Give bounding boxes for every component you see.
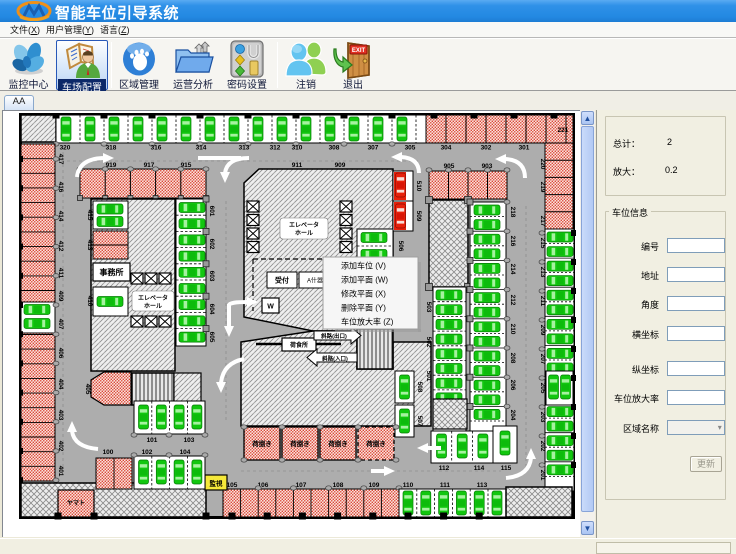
svg-text:603: 603 <box>208 271 215 282</box>
svg-text:510: 510 <box>415 181 422 192</box>
svg-text:320: 320 <box>60 145 71 152</box>
svg-text:202: 202 <box>539 441 546 452</box>
svg-text:206: 206 <box>509 380 516 391</box>
svg-text:112: 112 <box>439 465 450 472</box>
svg-text:车位放大率 (Z): 车位放大率 (Z) <box>341 317 394 327</box>
svg-text:911: 911 <box>292 162 303 169</box>
svg-text:605: 605 <box>208 332 215 343</box>
svg-text:413: 413 <box>86 240 93 251</box>
svg-text:502: 502 <box>425 337 432 348</box>
svg-text:105: 105 <box>227 482 238 489</box>
svg-text:314: 314 <box>196 145 207 152</box>
svg-text:修改平面 (X): 修改平面 (X) <box>341 289 386 299</box>
svg-text:213: 213 <box>539 267 546 278</box>
svg-text:217: 217 <box>539 216 546 227</box>
svg-text:209: 209 <box>539 325 546 336</box>
svg-text:212: 212 <box>509 295 516 306</box>
svg-text:312: 312 <box>270 145 281 152</box>
svg-text:事務所: 事務所 <box>100 267 124 277</box>
svg-text:107: 107 <box>296 482 307 489</box>
svg-text:100: 100 <box>103 449 114 456</box>
svg-text:斜路(入口): 斜路(入口) <box>321 355 348 363</box>
svg-text:205: 205 <box>539 383 546 394</box>
svg-text:506: 506 <box>397 241 404 252</box>
svg-text:405: 405 <box>84 384 91 395</box>
svg-text:218: 218 <box>509 207 516 218</box>
svg-text:101: 101 <box>147 437 158 444</box>
svg-text:404: 404 <box>57 379 64 390</box>
svg-text:ホール: ホール <box>144 303 162 310</box>
svg-text:403: 403 <box>57 410 64 421</box>
svg-text:508: 508 <box>416 382 423 393</box>
svg-text:302: 302 <box>481 145 492 152</box>
svg-text:荷捌き: 荷捌き <box>365 439 386 448</box>
svg-text:503: 503 <box>425 302 432 313</box>
svg-text:A什器: A什器 <box>307 277 323 285</box>
svg-text:211: 211 <box>539 296 546 307</box>
svg-text:W: W <box>267 304 274 311</box>
svg-text:219: 219 <box>539 182 546 193</box>
svg-text:荷捌き: 荷捌き <box>327 439 348 448</box>
svg-text:310: 310 <box>292 145 303 152</box>
svg-text:108: 108 <box>333 482 344 489</box>
svg-text:115: 115 <box>501 465 512 472</box>
svg-text:301: 301 <box>519 145 530 152</box>
svg-text:313: 313 <box>239 145 250 152</box>
svg-text:114: 114 <box>474 465 485 472</box>
svg-text:201: 201 <box>539 470 546 481</box>
svg-text:909: 909 <box>335 162 346 169</box>
svg-text:荷捌き: 荷捌き <box>251 439 272 448</box>
svg-text:305: 305 <box>405 145 416 152</box>
svg-text:監視: 監視 <box>210 479 224 488</box>
svg-text:410: 410 <box>86 296 93 307</box>
svg-text:110: 110 <box>403 482 414 489</box>
svg-text:415: 415 <box>86 210 93 221</box>
svg-text:601: 601 <box>208 206 215 217</box>
svg-text:エレベータ: エレベータ <box>289 221 319 229</box>
svg-text:113: 113 <box>477 482 488 489</box>
svg-text:204: 204 <box>509 410 516 421</box>
svg-text:318: 318 <box>106 145 117 152</box>
svg-text:406: 406 <box>57 348 64 359</box>
svg-text:216: 216 <box>509 236 516 247</box>
svg-text:斜路(出口): 斜路(出口) <box>320 332 347 340</box>
svg-text:401: 401 <box>57 466 64 477</box>
svg-text:エレベータ: エレベータ <box>138 294 168 302</box>
svg-text:220: 220 <box>539 159 546 170</box>
svg-text:ホール: ホール <box>295 230 313 237</box>
svg-text:荷食所: 荷食所 <box>289 341 308 349</box>
svg-text:荷捌き: 荷捌き <box>289 439 310 448</box>
svg-text:添加平面 (W): 添加平面 (W) <box>341 275 388 285</box>
svg-text:210: 210 <box>509 324 516 335</box>
svg-text:604: 604 <box>208 304 215 315</box>
svg-text:104: 104 <box>180 449 191 456</box>
svg-text:507: 507 <box>416 416 423 427</box>
svg-text:214: 214 <box>509 264 516 275</box>
svg-text:602: 602 <box>208 239 215 250</box>
svg-text:409: 409 <box>57 291 64 302</box>
svg-text:109: 109 <box>369 482 380 489</box>
svg-text:215: 215 <box>539 238 546 249</box>
svg-text:受付: 受付 <box>275 276 289 285</box>
svg-text:304: 304 <box>441 145 452 152</box>
svg-text:407: 407 <box>57 319 64 330</box>
svg-text:102: 102 <box>142 449 153 456</box>
svg-text:221: 221 <box>558 127 569 134</box>
svg-text:EXIT: EXIT <box>352 48 366 54</box>
svg-text:208: 208 <box>509 353 516 364</box>
svg-text:203: 203 <box>539 412 546 423</box>
svg-text:501: 501 <box>425 371 432 382</box>
svg-text:删除平面 (Y): 删除平面 (Y) <box>341 303 386 313</box>
svg-text:103: 103 <box>184 437 195 444</box>
svg-text:308: 308 <box>329 145 340 152</box>
svg-text:添加车位 (V): 添加车位 (V) <box>341 261 386 271</box>
svg-text:111: 111 <box>440 482 451 489</box>
svg-text:316: 316 <box>151 145 162 152</box>
svg-text:307: 307 <box>368 145 379 152</box>
svg-text:ヤマト: ヤマト <box>67 500 85 507</box>
svg-text:207: 207 <box>539 354 546 365</box>
svg-text:509: 509 <box>415 211 422 222</box>
